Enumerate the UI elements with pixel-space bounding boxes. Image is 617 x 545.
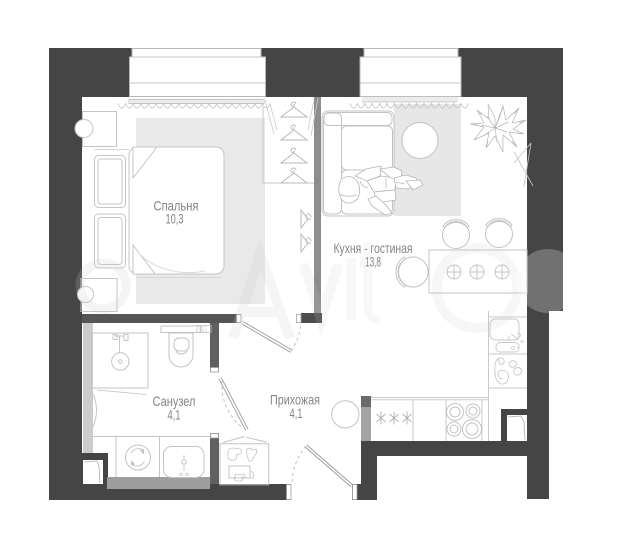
svg-text:10,3: 10,3 <box>166 212 184 227</box>
svg-text:4,1: 4,1 <box>168 408 181 423</box>
svg-text:4,1: 4,1 <box>290 406 303 421</box>
